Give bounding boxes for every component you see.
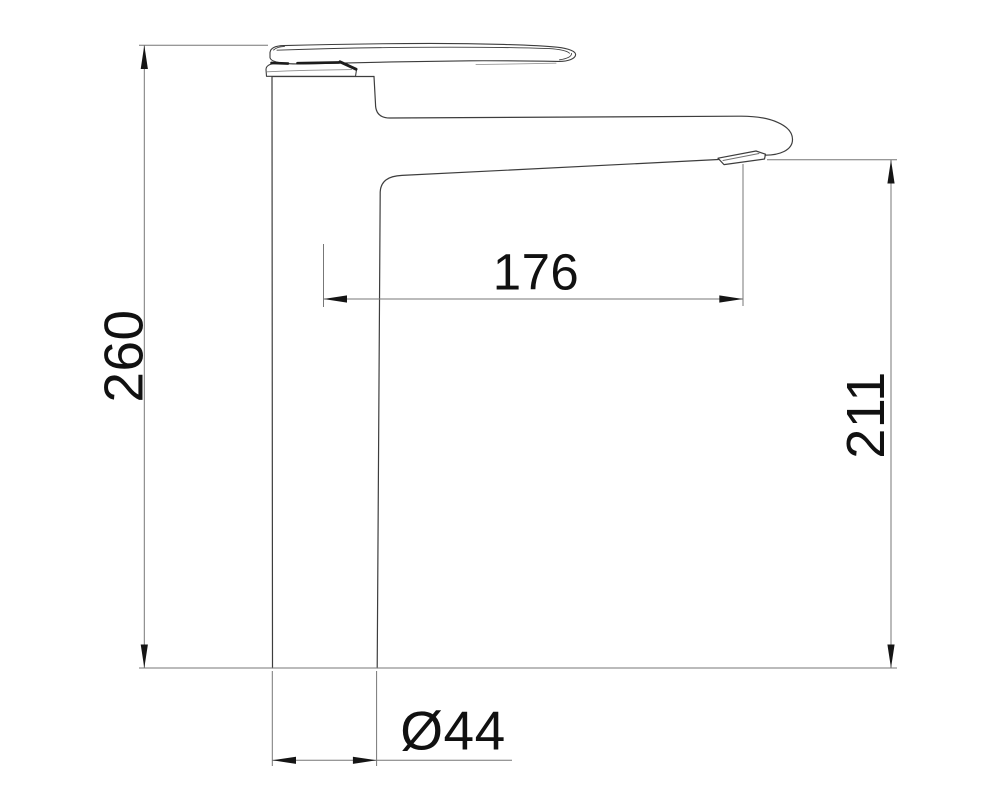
arrowhead-211-up bbox=[887, 160, 894, 184]
dimension-label-spout-height: 211 bbox=[839, 371, 893, 459]
handle-lever-outline bbox=[270, 43, 576, 64]
arrowhead-260-up bbox=[141, 45, 148, 69]
arrowhead-260-down bbox=[141, 645, 148, 669]
arrowhead-211-down bbox=[887, 645, 894, 669]
arrowhead-176-left bbox=[324, 295, 348, 302]
arrowhead-o44-right bbox=[353, 757, 377, 764]
handle-underside-shadow-left bbox=[272, 63, 289, 64]
dimension-label-overall-height: 260 bbox=[97, 309, 152, 402]
handle-underside-shadow-mid bbox=[298, 62, 340, 63]
arrowhead-o44-left bbox=[272, 757, 296, 764]
aerator-outlet bbox=[718, 151, 766, 165]
technical-drawing-canvas: 260 176 211 Ø44 bbox=[0, 0, 1000, 805]
spout-underside-contour bbox=[377, 160, 718, 669]
dimension-lines bbox=[139, 45, 897, 766]
body-column-left-edge bbox=[272, 77, 273, 669]
faucet-outline bbox=[272, 77, 793, 669]
arrowhead-176-right bbox=[719, 295, 743, 302]
aerator-inner-line bbox=[723, 154, 759, 161]
handle-underside-highlight bbox=[476, 63, 556, 64]
dimension-label-base-diameter: Ø44 bbox=[400, 704, 505, 759]
spout-top-contour bbox=[374, 77, 793, 156]
dimension-label-spout-reach: 176 bbox=[493, 247, 580, 298]
